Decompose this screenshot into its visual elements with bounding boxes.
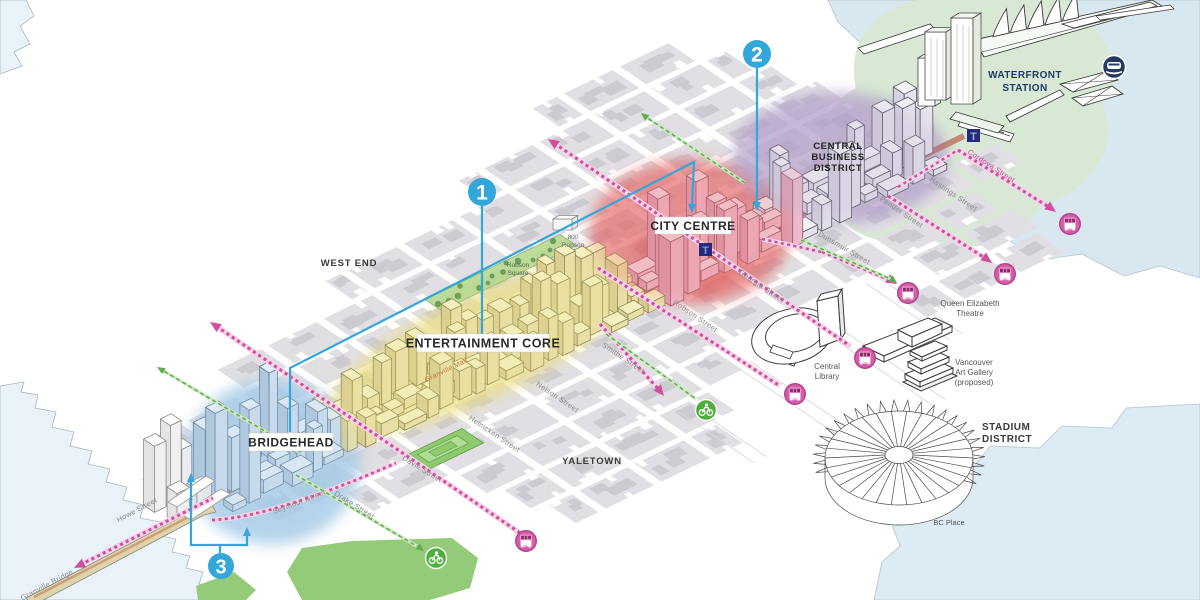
svg-text:1: 1 [476, 182, 488, 205]
svg-text:Robson: Robson [562, 242, 585, 249]
svg-text:STATION: STATION [1002, 83, 1047, 94]
svg-text:WEST END: WEST END [321, 258, 378, 269]
svg-text:Library: Library [815, 372, 839, 381]
svg-text:Art Gallery: Art Gallery [955, 368, 993, 377]
svg-text:CENTRAL: CENTRAL [813, 141, 863, 152]
svg-text:T: T [970, 131, 977, 143]
svg-text:Theatre: Theatre [956, 309, 984, 318]
svg-text:ENTERTAINMENT CORE: ENTERTAINMENT CORE [406, 337, 561, 351]
svg-text:DISTRICT: DISTRICT [814, 163, 863, 174]
svg-text:BRIDGEHEAD: BRIDGEHEAD [248, 436, 334, 450]
svg-text:WATERFRONT: WATERFRONT [988, 70, 1062, 81]
svg-text:Central: Central [814, 362, 840, 371]
svg-text:Square: Square [508, 270, 529, 277]
svg-text:CITY CENTRE: CITY CENTRE [650, 219, 735, 233]
svg-text:BUSINESS: BUSINESS [811, 152, 864, 163]
svg-text:(proposed): (proposed) [955, 378, 994, 387]
svg-text:Robson: Robson [507, 262, 530, 269]
svg-text:Queen Elizabeth: Queen Elizabeth [940, 299, 999, 308]
svg-text:T: T [702, 245, 709, 257]
svg-text:YALETOWN: YALETOWN [562, 456, 622, 467]
svg-text:BC Place: BC Place [933, 518, 964, 527]
svg-text:3: 3 [215, 557, 226, 579]
svg-text:DISTRICT: DISTRICT [982, 434, 1032, 445]
svg-text:2: 2 [751, 44, 763, 67]
svg-text:800: 800 [568, 234, 579, 241]
svg-text:Vancouver: Vancouver [955, 358, 993, 367]
svg-text:STADIUM: STADIUM [982, 422, 1030, 433]
